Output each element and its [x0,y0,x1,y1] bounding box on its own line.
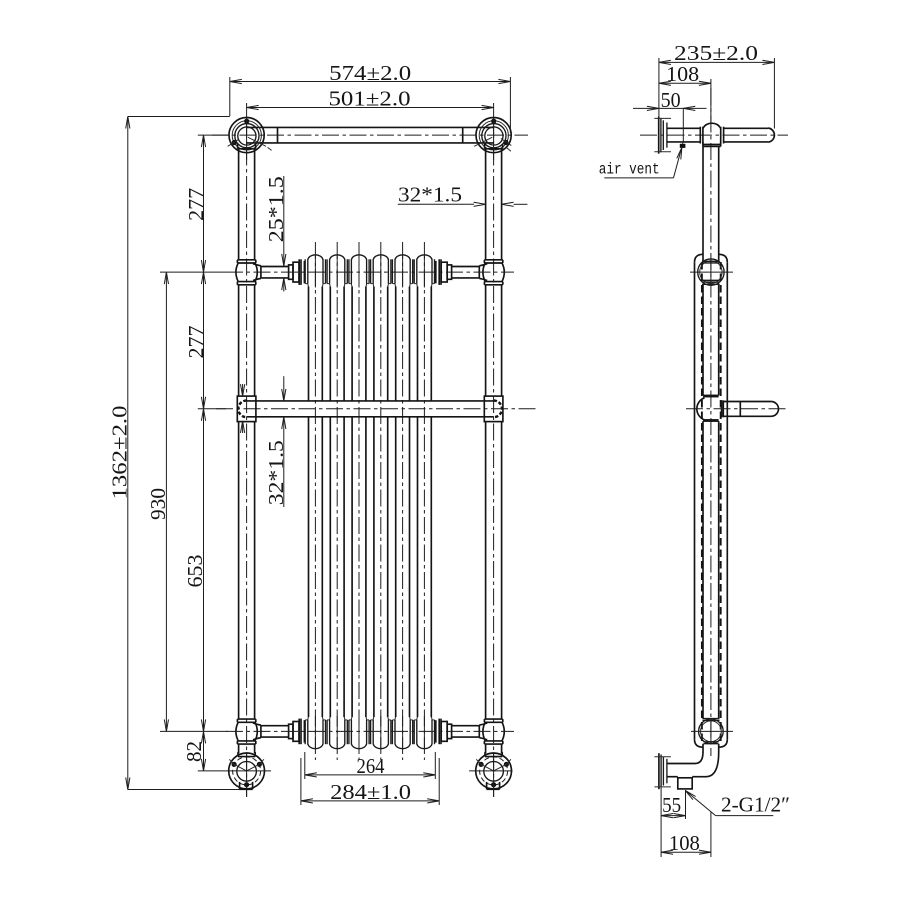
svg-text:277: 277 [184,188,208,221]
svg-text:82: 82 [182,741,206,762]
svg-text:32*1.5: 32*1.5 [398,183,462,207]
svg-text:108: 108 [669,831,700,855]
svg-text:264: 264 [357,754,385,778]
svg-text:55: 55 [662,793,681,817]
svg-text:25*1.5: 25*1.5 [264,176,288,242]
svg-text:574±2.0: 574±2.0 [329,61,411,85]
svg-text:1362±2.0: 1362±2.0 [107,406,131,500]
svg-text:930: 930 [146,488,170,520]
svg-text:108: 108 [666,62,699,86]
svg-text:501±2.0: 501±2.0 [329,87,411,111]
svg-text:air vent: air vent [599,160,660,178]
svg-text:2-G1/2″: 2-G1/2″ [721,793,790,817]
svg-text:284±1.0: 284±1.0 [330,780,411,804]
svg-text:32*1.5: 32*1.5 [264,440,288,505]
svg-text:277: 277 [184,326,208,359]
svg-text:653: 653 [183,555,207,588]
svg-text:50: 50 [661,88,681,112]
